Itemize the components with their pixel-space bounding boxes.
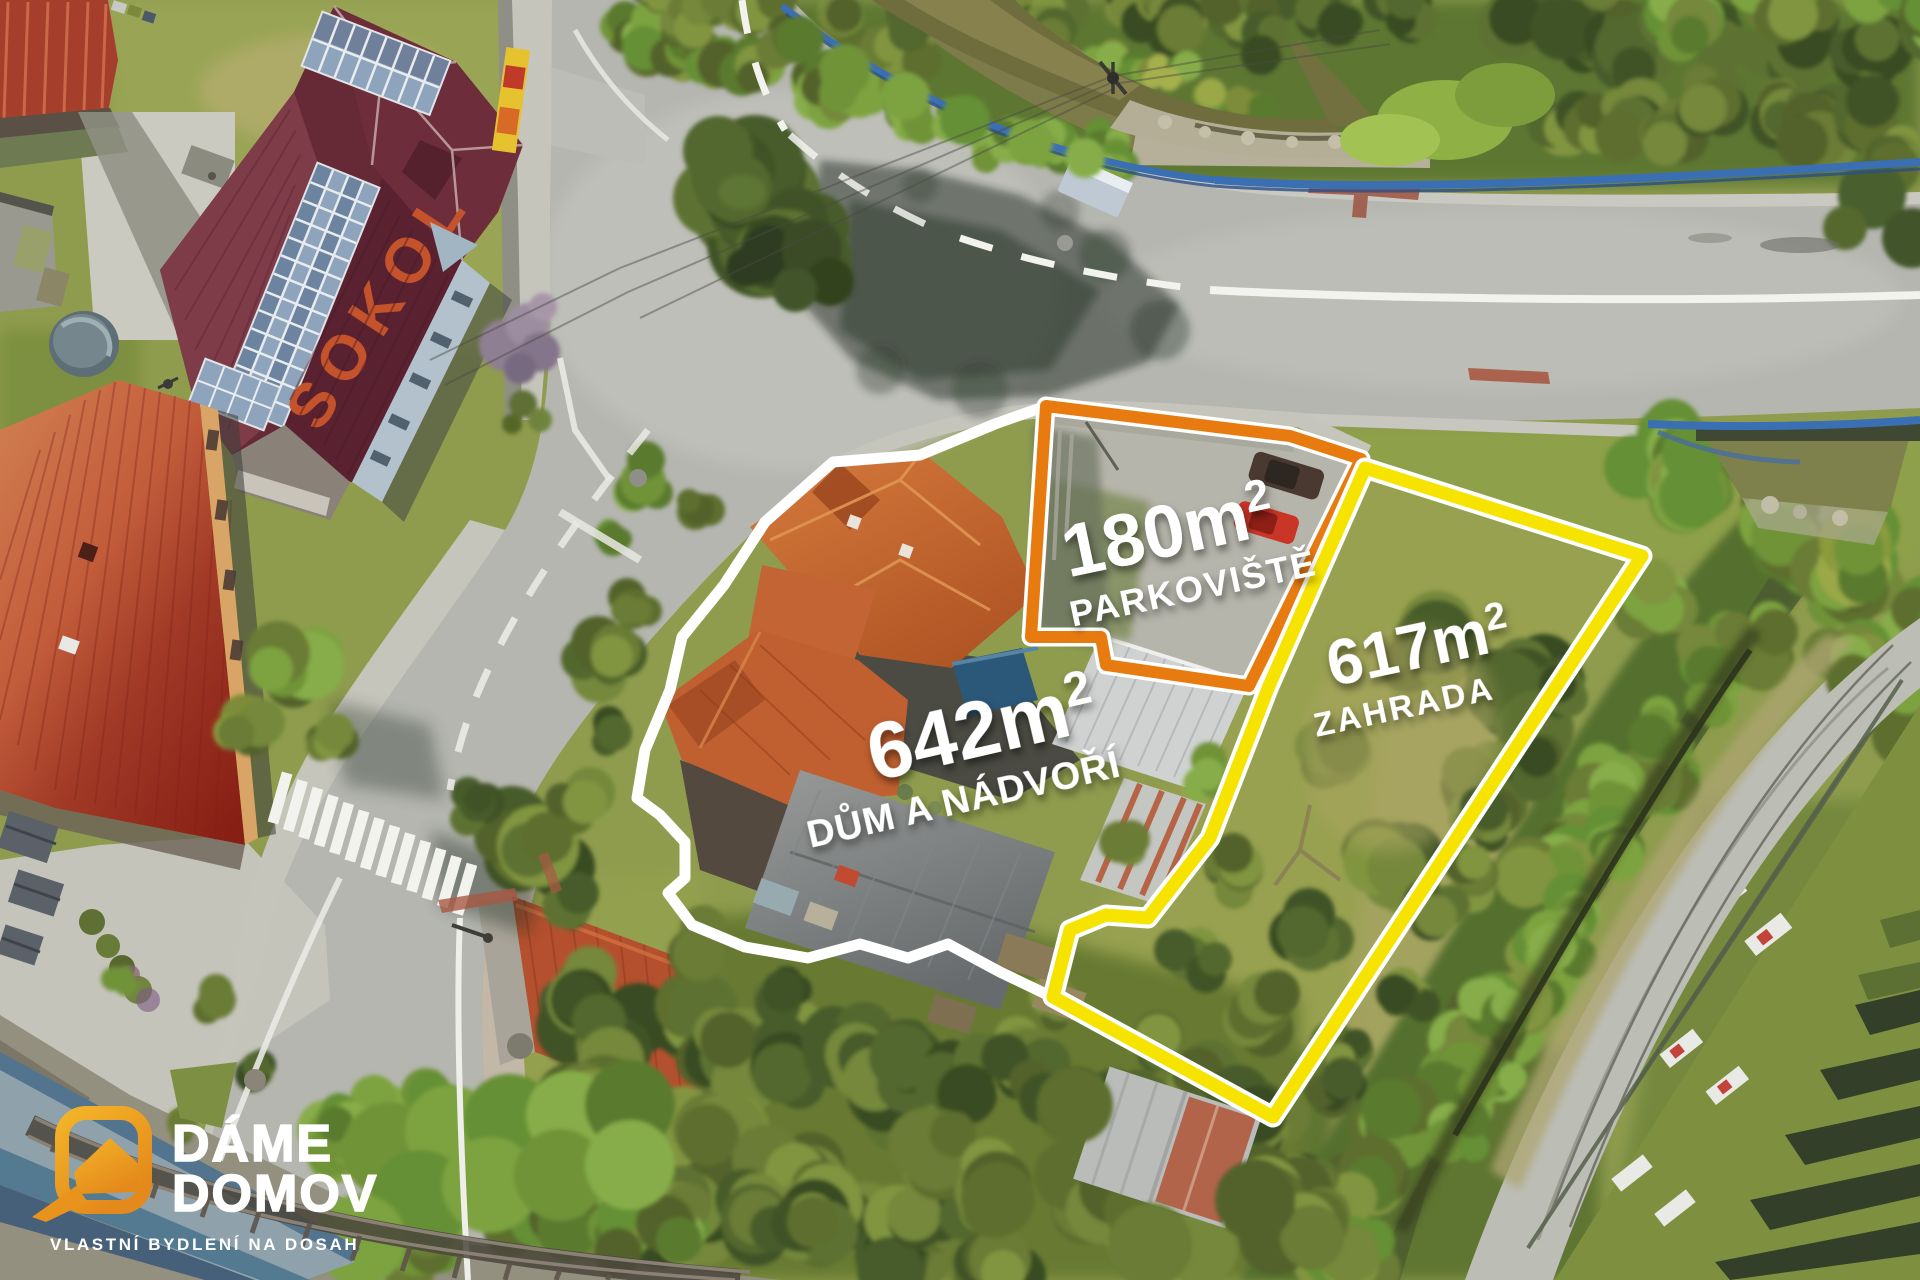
svg-text:VLASTNÍ BYDLENÍ NA DOSAH: VLASTNÍ BYDLENÍ NA DOSAH bbox=[50, 1235, 359, 1254]
svg-text:DOMOV: DOMOV bbox=[172, 1165, 378, 1223]
